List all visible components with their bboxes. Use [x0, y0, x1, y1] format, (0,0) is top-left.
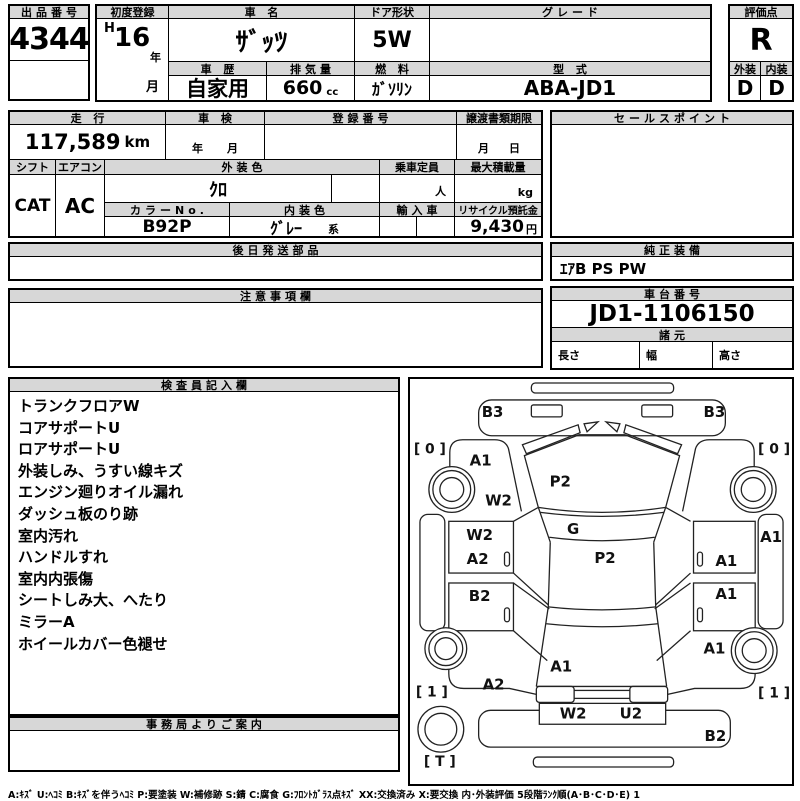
damage-mark: B2 [705, 727, 727, 745]
damage-mark: W2 [485, 491, 512, 509]
inspection-item: ミラーA [18, 612, 392, 634]
auction-number-label: 出品番号 [10, 6, 88, 19]
inspection-item: ロアサポートU [18, 439, 392, 461]
interior-grade-value: D [761, 76, 792, 100]
transfer-month-unit: 月 [478, 140, 489, 156]
interior-color-label: 内装色 [230, 203, 380, 217]
transfer-deadline-value: 月 日 [457, 125, 541, 160]
first-registration-value: H 16 年 月 [97, 19, 169, 100]
inspection-item: ホイールカバー色褪せ [18, 634, 392, 656]
damage-mark: W2 [466, 526, 493, 544]
recycle-fee-unit: 円 [526, 221, 537, 237]
mileage-label: 走 行 [10, 112, 166, 125]
front-plate [531, 383, 673, 393]
inspection-item: シートしみ大、へたり [18, 590, 392, 612]
inspector-notes-label: 検査員記入欄 [10, 379, 398, 392]
inspection-item: コアサポートU [18, 418, 392, 440]
door-shape-value: 5W [355, 19, 430, 62]
model-code-label: 型 式 [430, 62, 710, 76]
exterior-grade-label: 外装 [730, 62, 761, 76]
vehicle-header-table: 初度登録 車 名 ドア形状 グレード H 16 年 月 ｻﾞｯﾂ 5W 車 歴 … [95, 4, 712, 102]
fuel-label: 燃 料 [355, 62, 430, 76]
inspection-item: ハンドルすれ [18, 547, 392, 569]
displacement-value: 660 cc [267, 76, 355, 100]
damage-mark: A1 [550, 658, 572, 676]
mileage-value: 117,589 km [10, 125, 166, 160]
inspection-item: ダッシュ板のり跡 [18, 504, 392, 526]
score-label: 評価点 [730, 6, 792, 19]
office-info-box: 事務局よりご案内 [8, 716, 400, 772]
front-bumper [479, 400, 726, 436]
damage-mark: P2 [550, 472, 571, 490]
office-info-label: 事務局よりご案内 [10, 718, 398, 731]
damage-mark: U2 [620, 704, 642, 722]
shaken-year-unit: 年 [192, 140, 203, 156]
sill-left [420, 514, 445, 630]
car-damage-diagram: B3B3A1P2W2GP2W2A2B2A1A1A1A2A1A1W2U2B2[ 0… [410, 379, 792, 784]
chassis-box: 車台番号 JD1-1106150 諸元 長さ 幅 高さ [550, 286, 794, 370]
inspector-notes-box: 検査員記入欄 トランクフロアWコアサポートUロアサポートU外装しみ、うすい線キズ… [8, 377, 400, 716]
car-name-label: 車 名 [169, 6, 355, 19]
max-load-value: kg [455, 175, 541, 203]
shaken-month-unit: 月 [227, 140, 238, 156]
length-label: 長さ [558, 347, 580, 363]
damage-mark: A1 [715, 552, 737, 570]
aircon-value: AC [56, 175, 105, 236]
inspection-item: エンジン廻りオイル漏れ [18, 482, 392, 504]
fuel-value: ｶﾞｿﾘﾝ [355, 76, 430, 100]
score-box: 評価点 R 外装 内装 D D [728, 4, 794, 102]
displacement-number: 660 [283, 77, 323, 99]
grille-notch-right [606, 422, 620, 432]
damage-mark: A2 [467, 550, 489, 568]
damage-mark: G [567, 520, 579, 538]
tail-light-bar [574, 690, 630, 698]
door-shape-label: ドア形状 [355, 6, 430, 19]
office-info-value [10, 731, 398, 770]
width-label: 幅 [646, 347, 657, 363]
capacity-unit: 人 [435, 183, 446, 199]
wheel-front-left [429, 467, 475, 513]
wheel-front-right [730, 467, 776, 513]
transfer-day-unit: 日 [509, 140, 520, 156]
inspection-item: 外装しみ、うすい線キズ [18, 461, 392, 483]
displacement-label: 排気量 [267, 62, 355, 76]
interior-color-suffix: 系 [328, 221, 339, 237]
car-name-value: ｻﾞｯﾂ [169, 19, 355, 62]
rear-panel [539, 703, 665, 724]
shaken-value: 年 月 [166, 125, 265, 160]
damage-mark: A1 [470, 452, 492, 470]
color-no-value: B92P [105, 217, 230, 236]
inspection-item: 室内汚れ [18, 526, 392, 548]
corner-mark: [ T ] [424, 754, 456, 770]
first-registration-year-unit: 年 [150, 49, 161, 65]
damage-mark: A1 [760, 528, 782, 546]
corner-mark: [ 0 ] [414, 442, 446, 458]
windshield-bottom [549, 537, 654, 540]
car-history-label: 車 歴 [169, 62, 267, 76]
auction-number-empty [10, 61, 88, 99]
hood [524, 435, 679, 513]
import-car-cell-2 [417, 217, 455, 236]
dimension-length: 長さ [552, 342, 640, 368]
grade-label: グレード [430, 6, 710, 19]
damage-mark: A1 [703, 640, 725, 658]
sales-point-box: セールスポイント [550, 110, 794, 238]
interior-color-name: ｸﾞﾚｰ [270, 217, 302, 236]
recycle-fee-number: 9,430 [470, 217, 524, 236]
spare-tire [418, 706, 464, 752]
damage-mark: B2 [469, 587, 491, 605]
max-load-unit: kg [518, 186, 533, 199]
car-history-value: 自家用 [169, 76, 267, 100]
cautions-label: 注意事項欄 [10, 290, 541, 303]
inspector-notes-list: トランクフロアWコアサポートUロアサポートU外装しみ、うすい線キズエンジン廻りオ… [18, 396, 392, 655]
recycle-fee-value: 9,430 円 [455, 217, 541, 236]
spec-table: 走 行 車 検 登録番号 譲渡書類期限 117,589 km 年 月 月 日 シ… [8, 110, 543, 238]
first-registration-label: 初度登録 [97, 6, 169, 19]
damage-mark: A1 [715, 585, 737, 603]
dimension-height: 高さ [713, 342, 792, 368]
dimension-width: 幅 [640, 342, 713, 368]
chassis-no-label: 車台番号 [552, 288, 792, 301]
cautions-value [10, 303, 541, 366]
mileage-unit: km [125, 133, 151, 151]
shaken-label: 車 検 [166, 112, 265, 125]
import-car-label: 輸入車 [380, 203, 455, 217]
auction-sheet: { "top": { "auction_no": {"label": "出品番号… [0, 0, 800, 800]
registration-no-value [265, 125, 457, 160]
mileage-number: 117,589 [25, 130, 121, 154]
corner-mark: [ 0 ] [758, 442, 790, 458]
import-car-cell-1 [380, 217, 417, 236]
roof-rear-edge [548, 607, 655, 610]
exterior-color-label: 外装色 [105, 160, 380, 175]
auction-number-value: 4344 [10, 19, 88, 61]
later-parts-label: 後日発送部品 [10, 244, 541, 257]
interior-color-value: ｸﾞﾚｰ 系 [230, 217, 380, 236]
rear-plate [533, 757, 673, 767]
capacity-value: 人 [380, 175, 455, 203]
sales-point-value [552, 125, 792, 236]
wheel-rear-left [425, 628, 467, 670]
damage-mark: P2 [594, 549, 615, 567]
genuine-equipment-label: 純正装備 [552, 244, 792, 257]
shift-value: CAT [10, 175, 56, 236]
model-code-value: ABA-JD1 [430, 76, 710, 100]
damage-mark: B3 [482, 403, 504, 421]
c-pillar-folds [513, 631, 690, 661]
wheel-rear-right [731, 628, 777, 674]
displacement-unit: cc [326, 87, 338, 98]
damage-mark: B3 [704, 403, 726, 421]
capacity-label: 乗車定員 [380, 160, 455, 175]
tail-light-right [630, 686, 668, 702]
headlight-strip-right [624, 425, 682, 454]
max-load-label: 最大積載量 [455, 160, 541, 175]
interior-grade-label: 内装 [761, 62, 792, 76]
dimensions-label: 諸元 [552, 328, 792, 342]
later-parts-value [10, 257, 541, 279]
front-light-left [531, 405, 562, 417]
height-label: 高さ [719, 347, 741, 363]
damage-mark: W2 [560, 704, 587, 722]
genuine-equipment-value: ｴｱB PS PW [552, 257, 792, 279]
corner-mark: [ 1 ] [416, 684, 448, 700]
color-no-label: カラーNo. [105, 203, 230, 217]
chassis-no-value: JD1-1106150 [552, 301, 792, 328]
headlight-strip-left [522, 425, 580, 454]
cautions-box: 注意事項欄 [8, 288, 543, 368]
front-light-right [642, 405, 673, 417]
score-value: R [730, 19, 792, 62]
rear-glass-line [546, 624, 657, 627]
exterior-color-value: ｸﾛ [105, 175, 332, 203]
auction-number-box: 出品番号 4344 [8, 4, 90, 101]
damage-mark: A2 [483, 675, 505, 693]
a-pillar-folds [513, 507, 690, 521]
tail-light-left [536, 686, 574, 702]
b-pillar-folds [513, 573, 690, 609]
shift-label: シフト [10, 160, 56, 175]
genuine-equipment-box: 純正装備 ｴｱB PS PW [550, 242, 794, 281]
damage-diagram-box: B3B3A1P2W2GP2W2A2B2A1A1A1A2A1A1W2U2B2[ 0… [408, 377, 794, 786]
grille-notch-left [584, 422, 598, 432]
exterior-color-extra [332, 175, 380, 203]
aircon-label: エアコン [56, 160, 105, 175]
corner-mark: [ 1 ] [758, 685, 790, 701]
legend-text: A:ｷｽﾞ U:ﾍｺﾐ B:ｷｽﾞを伴うﾍｺﾐ P:要塗装 W:補修跡 S:錆 … [8, 787, 796, 801]
first-registration-year: 16 [114, 23, 150, 53]
later-parts-box: 後日発送部品 [8, 242, 543, 281]
first-registration-month-unit: 月 [146, 76, 159, 95]
inspection-item: 室内内張傷 [18, 569, 392, 591]
registration-no-label: 登録番号 [265, 112, 457, 125]
sales-point-label: セールスポイント [552, 112, 792, 125]
exterior-grade-value: D [730, 76, 761, 100]
grade-value [430, 19, 710, 62]
transfer-deadline-label: 譲渡書類期限 [457, 112, 541, 125]
recycle-fee-label: リサイクル預託金 [455, 203, 541, 217]
inspection-item: トランクフロアW [18, 396, 392, 418]
